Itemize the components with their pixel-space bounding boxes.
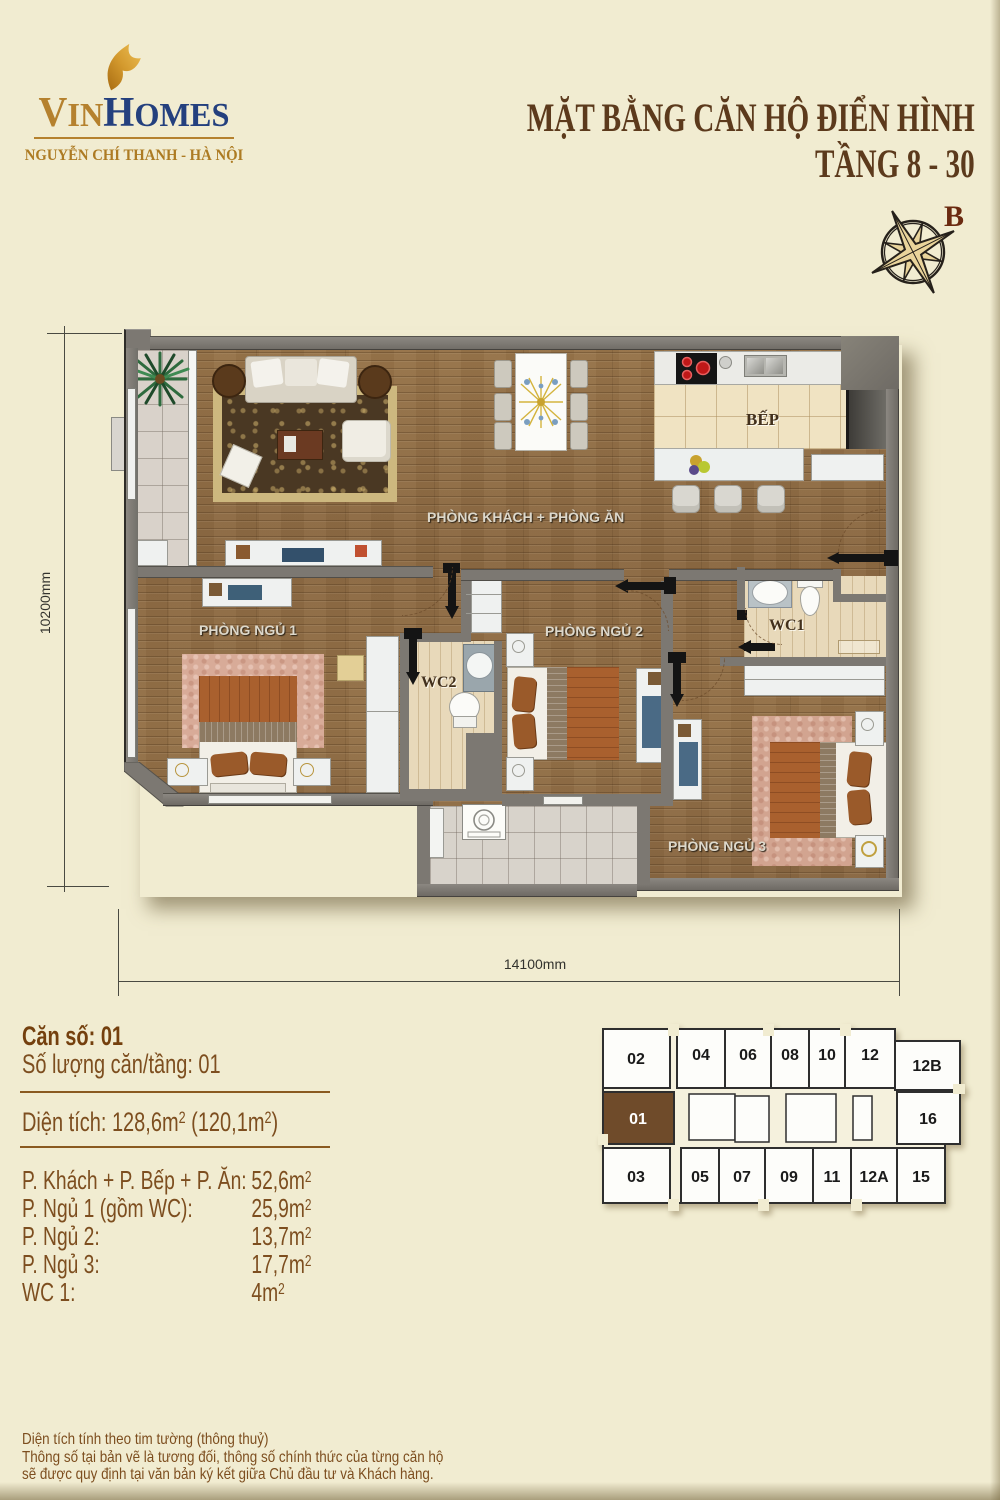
svg-text:12B: 12B [912, 1058, 941, 1075]
svg-text:16: 16 [919, 1111, 937, 1128]
svg-text:15: 15 [912, 1169, 930, 1186]
svg-text:08: 08 [781, 1047, 799, 1064]
svg-text:10: 10 [818, 1047, 836, 1064]
svg-text:12: 12 [861, 1047, 879, 1064]
svg-text:07: 07 [733, 1169, 751, 1186]
svg-text:01: 01 [629, 1111, 647, 1128]
svg-text:11: 11 [824, 1169, 841, 1186]
svg-text:03: 03 [627, 1169, 645, 1186]
svg-text:09: 09 [780, 1169, 798, 1186]
svg-text:06: 06 [739, 1047, 757, 1064]
svg-text:04: 04 [692, 1047, 710, 1064]
svg-text:05: 05 [691, 1169, 709, 1186]
svg-text:02: 02 [627, 1051, 645, 1068]
svg-text:12A: 12A [859, 1169, 889, 1186]
